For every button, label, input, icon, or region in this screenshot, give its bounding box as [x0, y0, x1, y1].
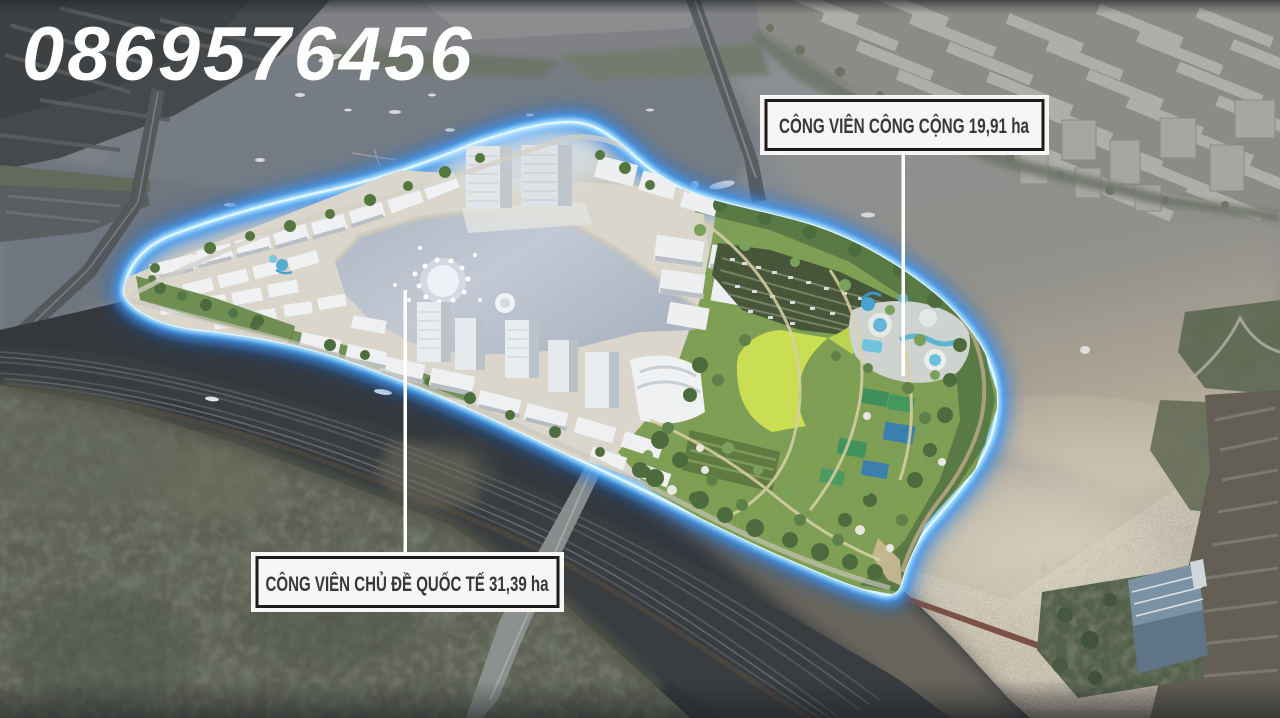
svg-text:CÔNG VIÊN CHỦ ĐỀ QUỐC TẾ 31,39: CÔNG VIÊN CHỦ ĐỀ QUỐC TẾ 31,39 ha [266, 572, 549, 596]
svg-text:CÔNG VIÊN CÔNG CỘNG 19,91 ha: CÔNG VIÊN CÔNG CỘNG 19,91 ha [779, 114, 1029, 138]
svg-text:0869576456: 0869576456 [22, 12, 475, 97]
